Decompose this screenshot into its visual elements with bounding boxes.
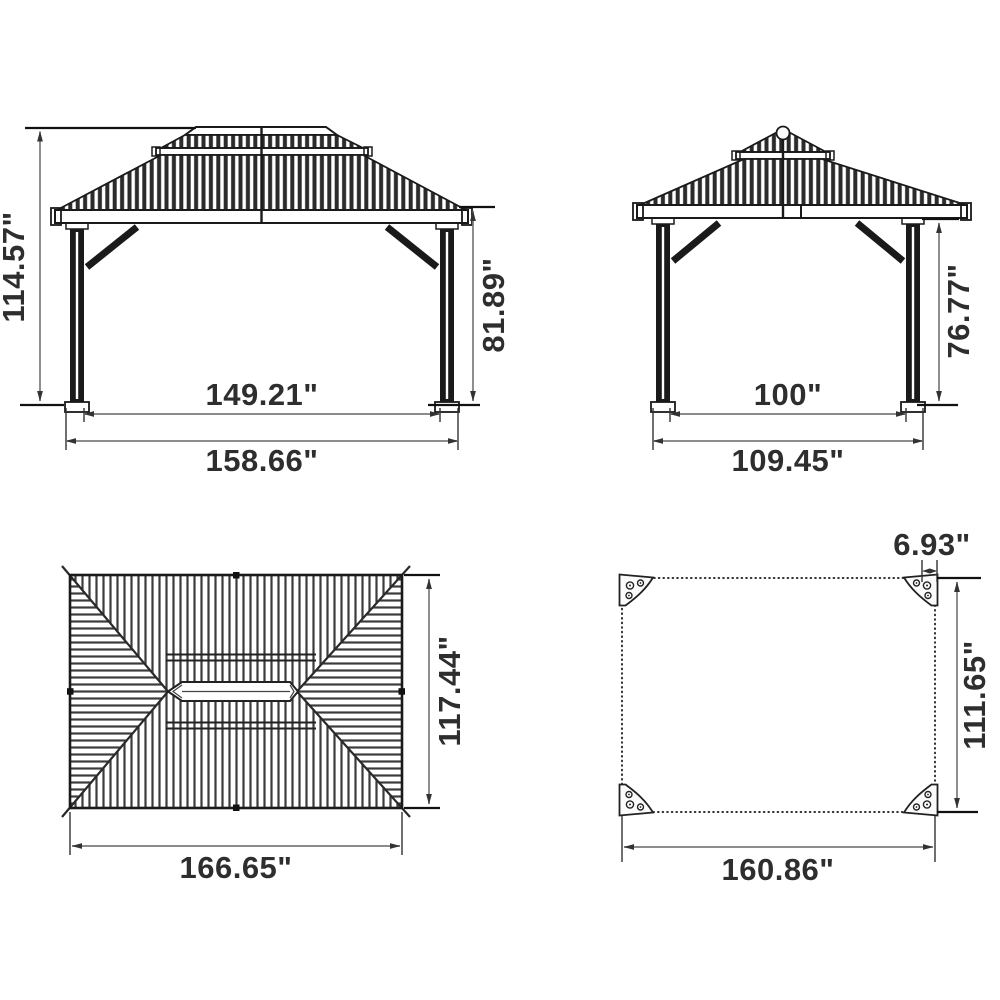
corner-bracket-top-left [620, 575, 654, 606]
footprint-dimensions: 6.93" 111.65" 160.86" [622, 527, 992, 887]
side-outer-width-label: 109.45" [731, 443, 844, 475]
front-outer-width-label: 158.66" [205, 443, 318, 475]
front-gazebo-drawing [51, 127, 472, 412]
side-gazebo-drawing [633, 127, 971, 413]
corner-bracket-top-right [904, 575, 938, 606]
front-inner-width-label: 149.21" [205, 377, 318, 412]
front-eave-height-label: 81.89" [476, 257, 511, 352]
side-right-brace [857, 223, 903, 261]
side-inner-width-label: 100" [754, 377, 822, 412]
side-left-brace [673, 223, 719, 261]
roof-plan-drawing [62, 566, 410, 817]
roof-depth-label: 117.44" [432, 635, 467, 746]
roof-plan-view: 117.44" 166.65" [30, 555, 500, 890]
side-finial [777, 127, 790, 140]
side-eave-height-label: 76.77" [941, 263, 976, 358]
side-lower-roof [640, 159, 966, 205]
side-elevation-view: 76.77" 100" 109.45" [600, 95, 1000, 475]
front-total-height-label: 114.57" [0, 211, 31, 322]
corner-bracket-bottom-left [620, 785, 654, 816]
gazebo-dimension-diagram: 114.57" 81.89" 149.21" 158.66" [0, 0, 1000, 1000]
roof-width-label: 166.65" [179, 850, 292, 885]
side-dimensions: 76.77" 100" 109.45" [653, 219, 976, 475]
footprint-plan-view: 6.93" 111.65" 160.86" [580, 515, 1000, 895]
front-left-brace [87, 227, 137, 267]
footprint-drawing [620, 575, 938, 816]
front-elevation-view: 114.57" 81.89" 149.21" 158.66" [0, 95, 520, 475]
front-right-brace [387, 227, 437, 267]
base-width-label: 160.86" [721, 852, 834, 887]
base-bracket-width-label: 6.93" [893, 527, 971, 562]
base-depth-label: 111.65" [957, 640, 992, 750]
footprint-outline [622, 578, 935, 812]
corner-bracket-bottom-right [904, 785, 938, 816]
